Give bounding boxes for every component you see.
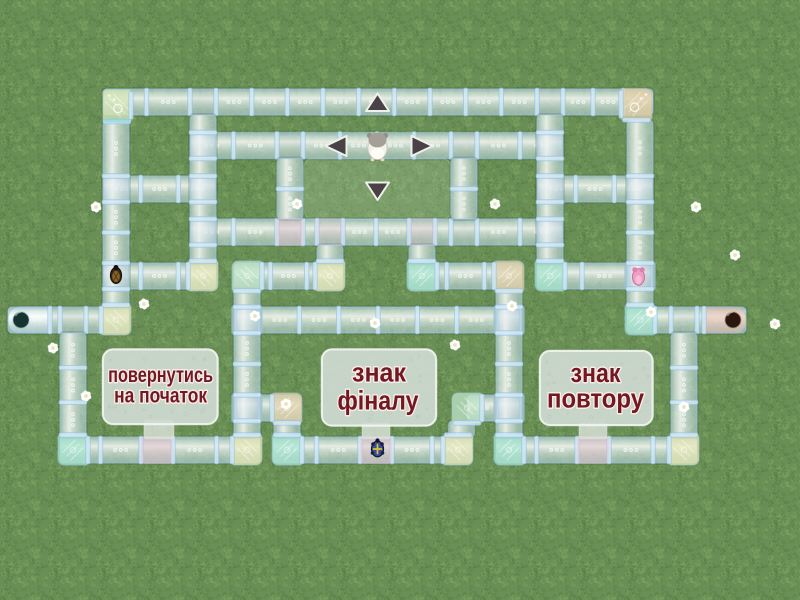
svg-text:повтору: повтору [547, 384, 644, 414]
svg-text:фіналу: фіналу [338, 386, 419, 416]
svg-text:знак: знак [352, 358, 406, 388]
svg-text:на початок: на початок [114, 385, 207, 408]
